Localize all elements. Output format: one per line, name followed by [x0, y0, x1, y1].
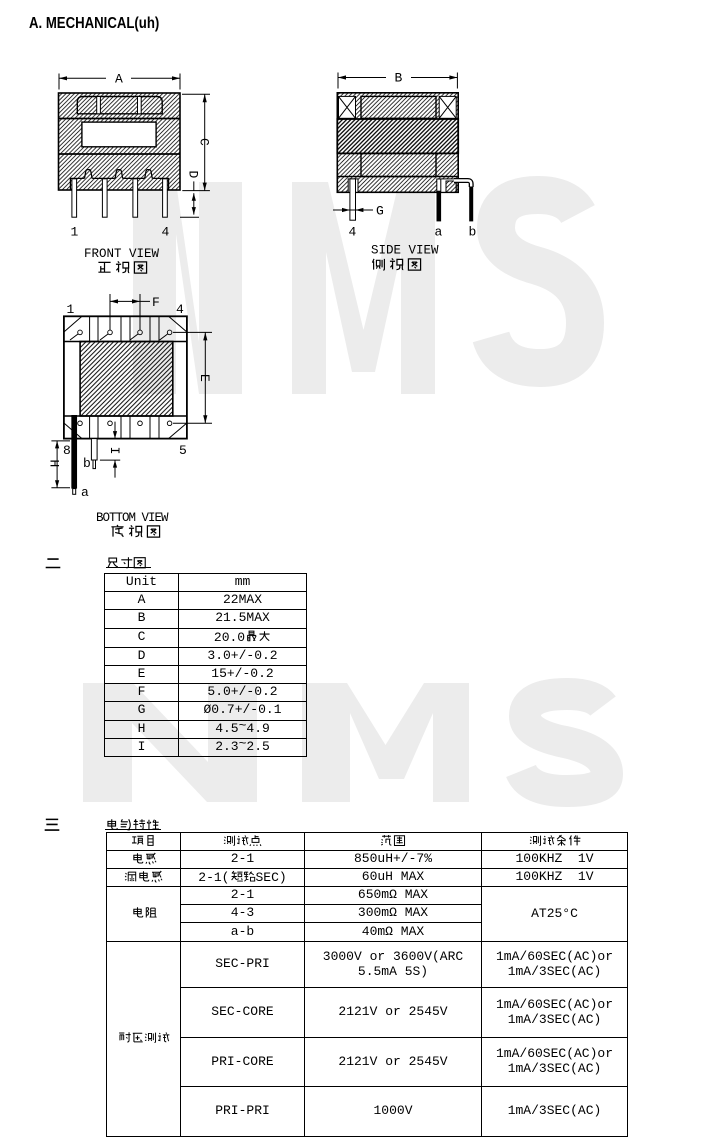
- svg-text:a: a: [435, 225, 443, 240]
- svg-text:1: 1: [67, 302, 75, 317]
- svg-text:D: D: [186, 171, 201, 179]
- svg-text:I: I: [107, 447, 122, 455]
- svg-text:C: C: [197, 138, 212, 146]
- svg-text:b: b: [469, 225, 477, 240]
- svg-text:H: H: [47, 460, 62, 468]
- svg-text:B: B: [395, 71, 403, 86]
- svg-text:5: 5: [179, 443, 187, 458]
- svg-text:4: 4: [176, 302, 184, 317]
- svg-text:1: 1: [71, 225, 79, 240]
- svg-text:4: 4: [349, 225, 357, 240]
- svg-text:SIDE VIEW: SIDE VIEW: [371, 244, 439, 258]
- svg-text:a: a: [81, 485, 89, 500]
- svg-text:F: F: [152, 295, 160, 310]
- svg-text:BOTTOM VIEW: BOTTOM VIEW: [96, 511, 169, 525]
- svg-text:E: E: [197, 374, 212, 382]
- svg-text:b: b: [83, 456, 91, 471]
- svg-text:G: G: [376, 204, 384, 219]
- svg-text:8: 8: [63, 443, 71, 458]
- svg-text:4: 4: [162, 225, 170, 240]
- svg-text:A: A: [115, 72, 123, 87]
- svg-text:FRONT VIEW: FRONT VIEW: [84, 247, 160, 261]
